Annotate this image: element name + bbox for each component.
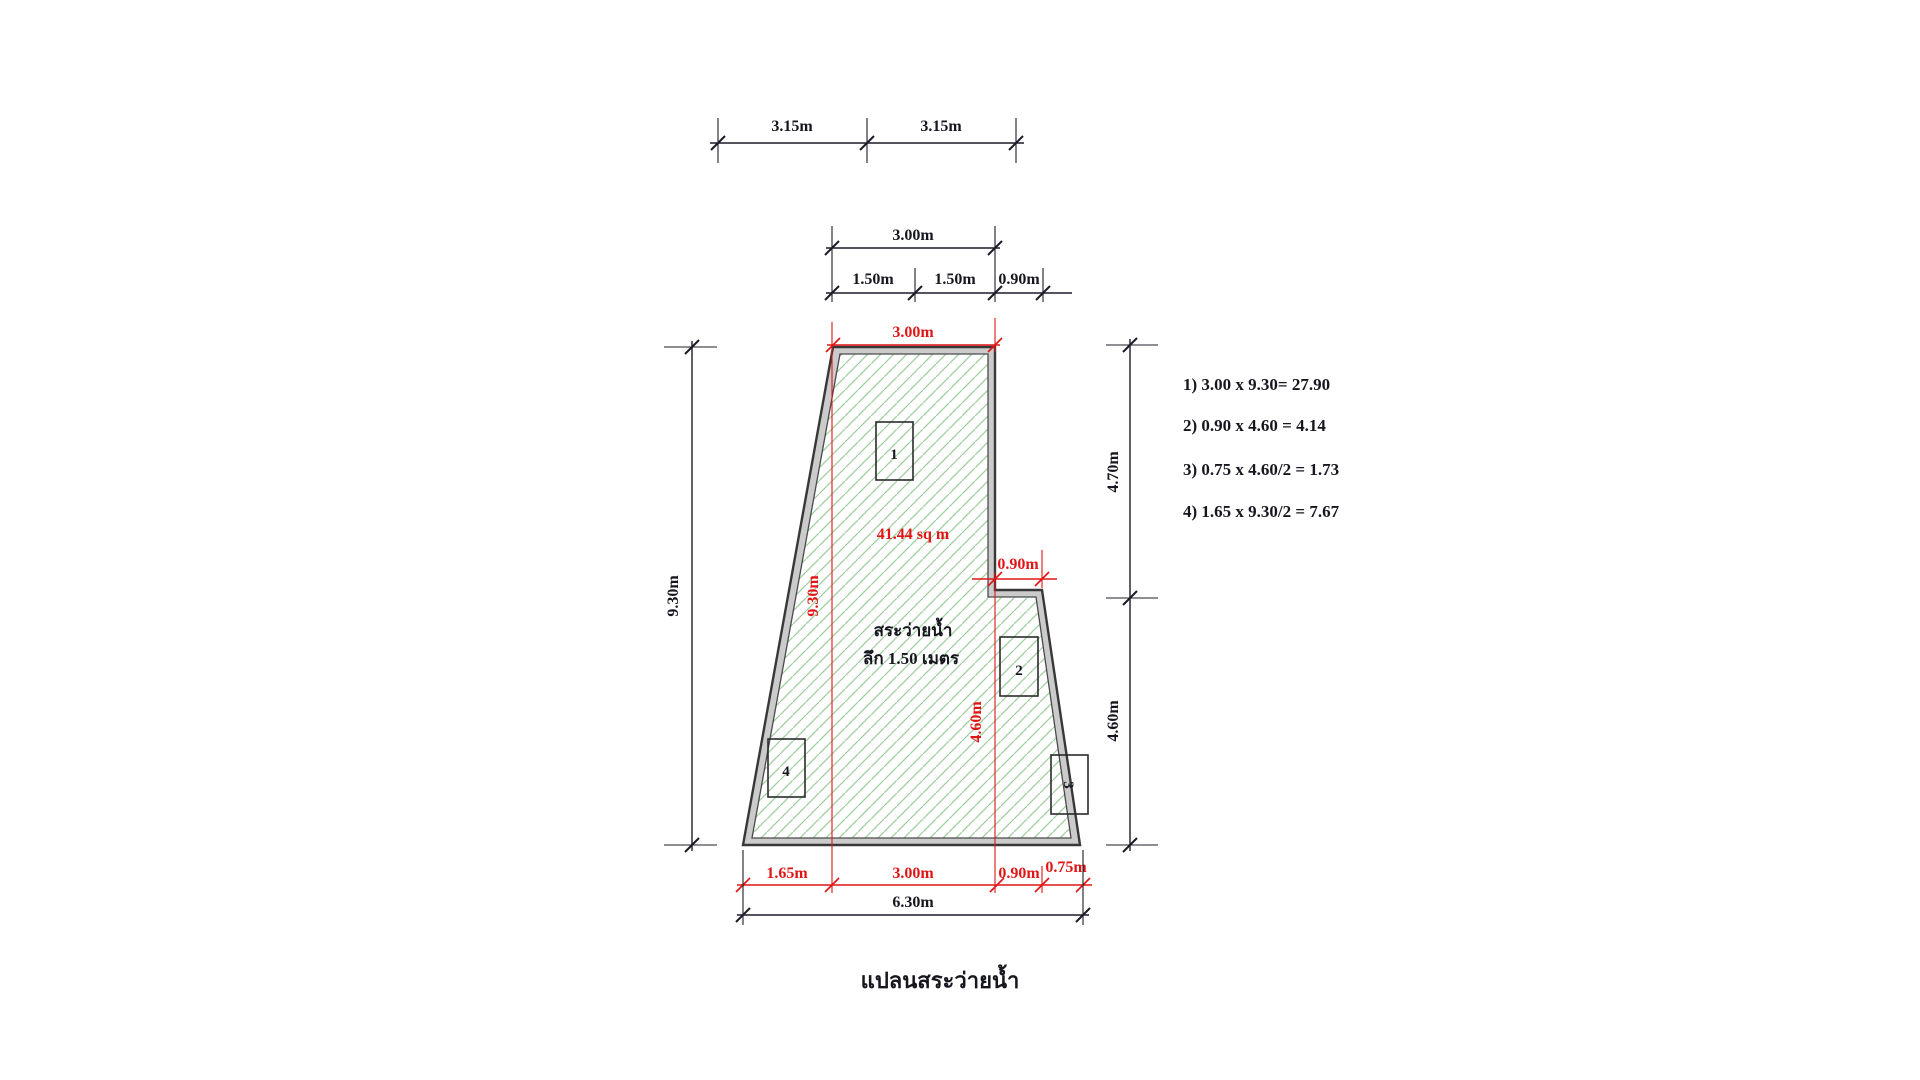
- dim-left-height: 9.30m: [664, 340, 717, 852]
- dim-label: 3.00m: [892, 227, 934, 244]
- region-number: 3: [1060, 781, 1076, 789]
- dim-label: 3.15m: [920, 118, 962, 135]
- calc-line-4: 4) 1.65 x 9.30/2 = 7.67: [1183, 502, 1340, 521]
- dim-label: 3.00m: [892, 324, 934, 341]
- dim-label: 6.30m: [892, 894, 934, 911]
- pool-depth-label: ลึก 1.50 เมตร: [863, 649, 960, 668]
- area-calculations: 1) 3.00 x 9.30= 27.90 2) 0.90 x 4.60 = 4…: [1183, 375, 1340, 521]
- dim-label: 4.70m: [1105, 451, 1122, 493]
- dim-label: 1.50m: [934, 271, 976, 288]
- dim-label: 0.75m: [1045, 859, 1087, 876]
- dim-label: 1.50m: [852, 271, 894, 288]
- pool-area-label: 41.44 sq m: [877, 526, 950, 543]
- region-number: 1: [890, 447, 898, 463]
- calc-line-1: 1) 3.00 x 9.30= 27.90: [1183, 375, 1330, 394]
- dim-label-red-460: 4.60m: [968, 701, 985, 743]
- pool-plan-page: 3.15m 3.15m 3.00m 1.50m 1.50m 0.90m 3.00…: [0, 0, 1920, 1080]
- region-number: 4: [782, 764, 790, 780]
- dim-label: 9.30m: [665, 575, 682, 617]
- dim-label-red-930: 9.30m: [805, 575, 822, 617]
- dim-top-overall: 3.15m 3.15m: [710, 118, 1024, 163]
- dim-top-split: 1.50m 1.50m 0.90m: [825, 268, 1072, 302]
- region-number: 2: [1015, 663, 1023, 679]
- pool-name-label: สระว่ายน้ำ: [874, 617, 953, 640]
- dim-top-width: 3.00m: [825, 226, 1002, 302]
- calc-line-2: 2) 0.90 x 4.60 = 4.14: [1183, 416, 1326, 435]
- drawing-title: แปลนสระว่ายน้ำ: [861, 964, 1020, 993]
- dim-bottom-overall: 6.30m: [736, 850, 1090, 925]
- pool-plan-drawing: 3.15m 3.15m 3.00m 1.50m 1.50m 0.90m 3.00…: [0, 0, 1920, 1080]
- dim-label: 0.90m: [997, 556, 1039, 573]
- dim-label: 0.90m: [998, 865, 1040, 882]
- dim-label: 3.15m: [771, 118, 813, 135]
- calc-line-3: 3) 0.75 x 4.60/2 = 1.73: [1183, 460, 1339, 479]
- dim-label: 0.90m: [998, 271, 1040, 288]
- dim-label: 1.65m: [766, 865, 808, 882]
- dim-label: 4.60m: [1105, 700, 1122, 742]
- dim-bottom-red: 1.65m 3.00m 0.90m 0.75m: [736, 859, 1092, 893]
- dim-right-heights: 4.70m 4.60m: [1105, 338, 1158, 852]
- dim-label: 3.00m: [892, 865, 934, 882]
